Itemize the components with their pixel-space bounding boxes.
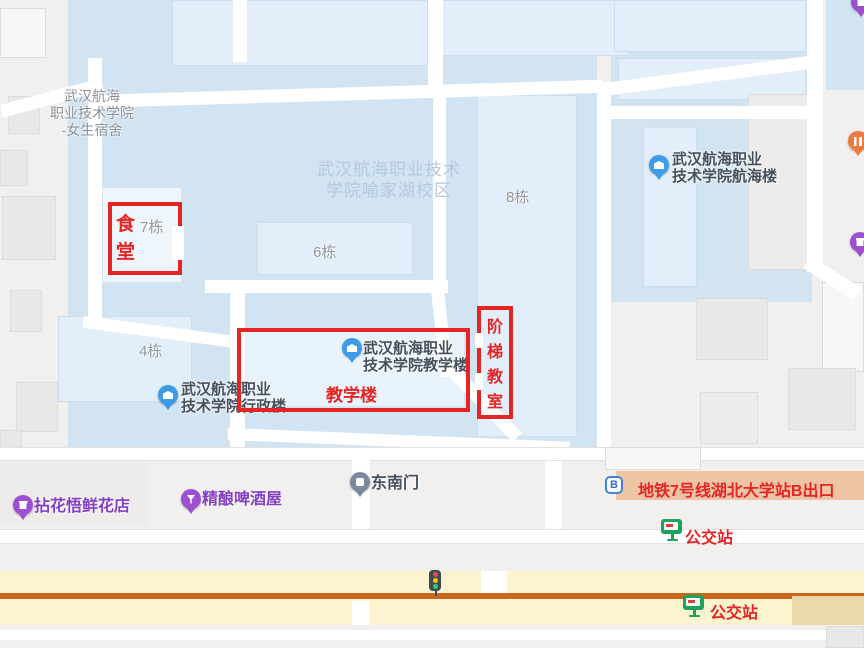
flower-shop-pin[interactable] [13, 495, 33, 522]
dorm-label-line3: -女生宿舍 [38, 122, 146, 139]
nautical-building-label[interactable]: 武汉航海职业 技术学院航海楼 [672, 151, 777, 185]
road-main-east-west [0, 447, 864, 461]
lecture-char-1: 阶 [487, 313, 503, 337]
shop-icon [13, 495, 33, 515]
road [0, 630, 864, 640]
canteen-label-char1: 食 [116, 209, 135, 236]
beer-house-label[interactable]: 精酿啤酒屋 [202, 491, 282, 508]
bus-stop-icon[interactable] [661, 519, 683, 542]
gray-building [696, 298, 768, 360]
gray-building [822, 282, 864, 372]
building-8-label: 8栋 [506, 186, 529, 207]
southeast-gate-label[interactable]: 东南门 [371, 475, 419, 492]
teaching-annotation-label: 教学楼 [326, 381, 377, 406]
building-4-label: 4栋 [139, 340, 162, 361]
map-canvas[interactable]: 武汉航海职业技术 学院喻家湖校区 武汉航海 职业技术学院 -女生宿舍 7栋 6栋… [0, 0, 864, 648]
bus-stop-label-2: 公交站 [710, 599, 758, 623]
campus-watermark: 武汉航海职业技术 学院喻家湖校区 [300, 159, 478, 201]
gray-building [2, 196, 56, 260]
annotation-notch [475, 333, 483, 348]
traffic-light-icon [429, 570, 443, 597]
campus-building [614, 0, 806, 52]
metro-exit-b-icon[interactable]: B [605, 476, 623, 494]
shop-icon [850, 232, 864, 252]
school-icon [158, 385, 178, 405]
gray-building [0, 8, 46, 58]
canteen-label-char2: 堂 [116, 237, 135, 264]
restaurant-icon [848, 131, 864, 151]
admin-building-pin[interactable] [158, 385, 178, 412]
road [481, 571, 507, 593]
campus-watermark-line2: 学院喻家湖校区 [300, 180, 478, 201]
nautical-label-line1: 武汉航海职业 [672, 151, 777, 168]
gray-building [700, 392, 758, 444]
road [428, 0, 443, 92]
flower-shop-label[interactable]: 拈花悟鲜花店 [34, 498, 130, 515]
lecture-char-3: 教 [487, 363, 503, 387]
gray-building [0, 150, 28, 186]
lecture-char-4: 室 [487, 388, 503, 412]
road [807, 0, 823, 272]
gray-building [788, 368, 856, 430]
school-icon [649, 155, 669, 175]
shop-pin-northeast[interactable] [851, 0, 864, 19]
gray-building [826, 626, 864, 648]
road [352, 601, 370, 625]
drink-icon [181, 489, 201, 509]
building-6-label: 6栋 [313, 241, 336, 262]
nautical-building-pin[interactable] [649, 155, 669, 182]
nautical-label-line2: 技术学院航海楼 [672, 168, 777, 185]
road [597, 82, 611, 450]
southeast-gate-pin[interactable] [350, 472, 370, 499]
gray-building [605, 447, 701, 470]
campus-watermark-line1: 武汉航海职业技术 [300, 159, 478, 180]
bus-stop-icon[interactable] [683, 595, 705, 618]
annotation-notch [172, 226, 184, 260]
gray-building [16, 382, 58, 432]
shop-pin-east[interactable] [850, 232, 864, 259]
restaurant-pin[interactable] [848, 131, 864, 158]
metro-exit-label: 地铁7号线湖北大学站B出口 [638, 477, 834, 501]
road [0, 529, 864, 544]
campus-building [440, 0, 630, 56]
bus-stop-label-1: 公交站 [685, 524, 733, 548]
lecture-char-2: 梯 [487, 338, 503, 362]
tan-block [792, 596, 864, 625]
annotation-notch [475, 373, 483, 390]
gray-building [10, 290, 42, 332]
dorm-label-line2: 职业技术学院 [38, 105, 146, 122]
road [233, 0, 247, 62]
gate-icon [350, 472, 370, 492]
lecture-hall-annotation-box: 阶 梯 教 室 [477, 306, 513, 419]
road [611, 106, 807, 119]
campus-building [172, 0, 428, 66]
dorm-label: 武汉航海 职业技术学院 -女生宿舍 [38, 88, 146, 139]
road [545, 461, 562, 531]
dorm-label-line1: 武汉航海 [38, 88, 146, 105]
beer-house-pin[interactable] [181, 489, 201, 516]
